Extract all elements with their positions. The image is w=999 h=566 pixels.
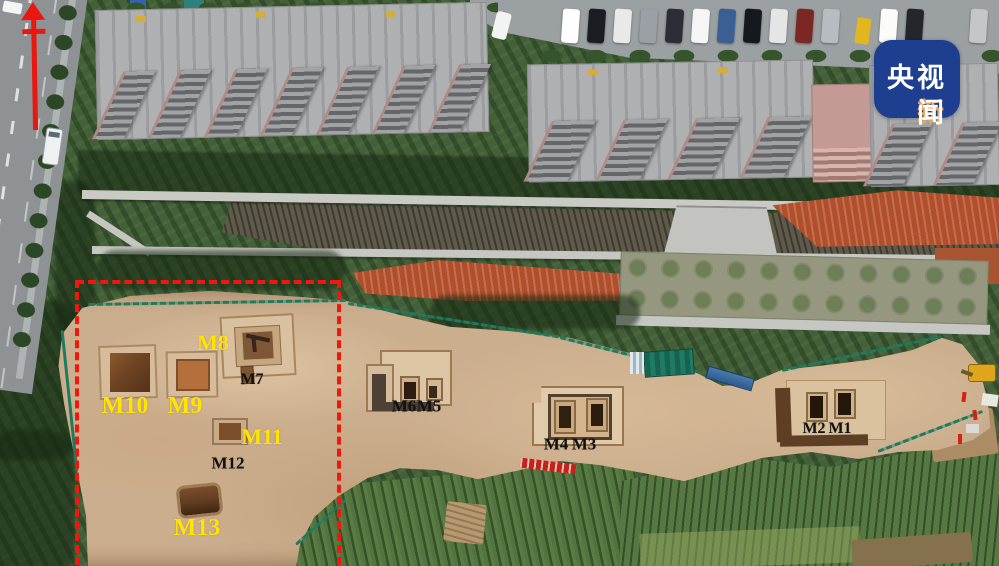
cctv-news-badge: 央视 新闻 [874,40,960,118]
north-arrow-crossbar [22,29,45,34]
aerial-photo-excavation-site: M8M7M10M9M6M5M11M12M4M3M2M1M13 央视 新闻 [0,0,999,566]
tomb-label-m5: M5 [417,398,442,415]
tomb-label-m2: M2 [802,421,825,437]
north-arrow [17,2,51,135]
tomb-label-m12: M12 [211,455,244,472]
tomb-label-m9: M9 [168,394,203,418]
tomb-labels-layer: M8M7M10M9M6M5M11M12M4M3M2M1M13 [0,0,999,566]
tomb-label-m8: M8 [197,332,229,354]
tomb-label-m10: M10 [102,394,149,418]
tomb-label-m7: M7 [240,372,263,388]
tomb-label-m11: M11 [241,426,283,448]
tomb-label-m1: M1 [828,421,851,437]
tomb-label-m6: M6 [392,398,417,415]
tomb-label-m4: M4 [544,436,569,453]
tomb-label-m13: M13 [174,516,221,540]
badge-line-1: 央视 [887,62,947,95]
tomb-label-m3: M3 [572,436,597,453]
badge-rest-char: 闻 [917,97,947,130]
